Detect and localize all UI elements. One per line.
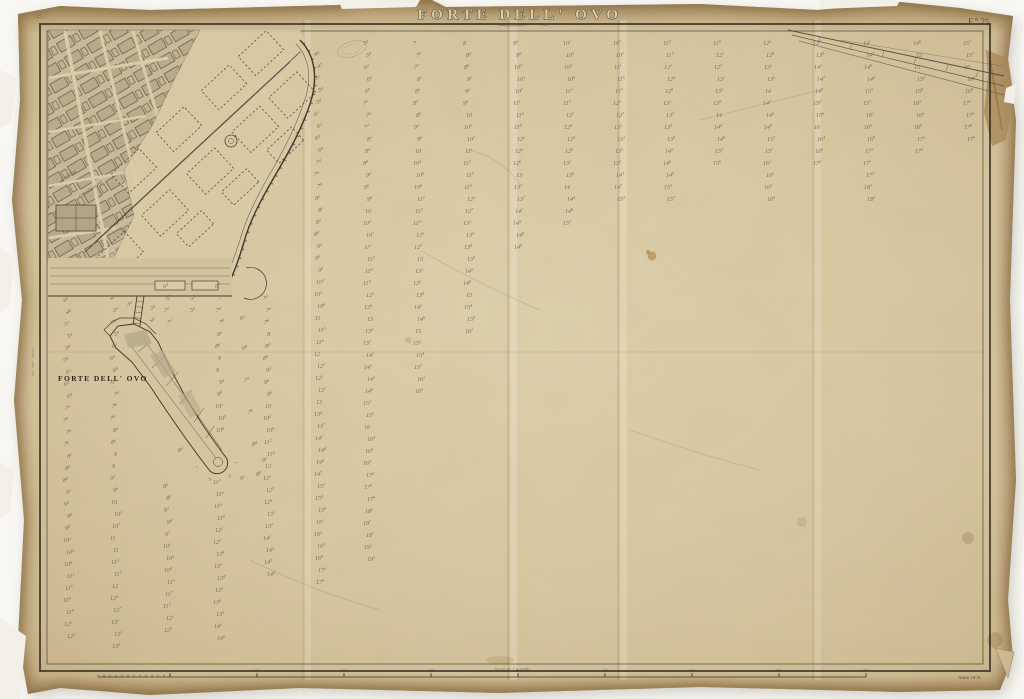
seawall-scallop-dot bbox=[248, 231, 250, 233]
seawall-scallop-dot bbox=[311, 102, 313, 104]
seawall-scallop-dot bbox=[285, 159, 287, 161]
scale-tick-label: 100 bbox=[254, 668, 260, 673]
sounding-depth: 9 bbox=[114, 452, 117, 458]
sounding-depth: 10 bbox=[265, 404, 271, 410]
sounding-depth: 15 bbox=[914, 65, 920, 71]
seawall-scallop-dot bbox=[255, 215, 257, 217]
seawall-scallop-dot bbox=[308, 111, 310, 113]
seawall-scallop-dot bbox=[313, 94, 315, 96]
scanned-map-sheet: FORTE DELL' OVO F.° 25. 25. bbox=[0, 0, 1024, 699]
scale-tick-label: 200 bbox=[341, 668, 347, 673]
seawall-scallop-dot bbox=[301, 127, 303, 129]
sounding-depth: 15 bbox=[415, 329, 421, 335]
sounding-depth: 10 bbox=[466, 113, 472, 119]
seawall-scallop-dot bbox=[305, 119, 307, 121]
sounding-depth: 11 bbox=[315, 316, 321, 322]
seawall-scallop-dot bbox=[251, 223, 253, 225]
sounding-depth: 15 bbox=[916, 53, 922, 59]
seawall-scallop-dot bbox=[297, 136, 299, 138]
sounding-depth: 15 bbox=[466, 293, 472, 299]
sounding-depth: 13 bbox=[417, 257, 423, 263]
scale-label: Scala di 1 a 1000 bbox=[495, 668, 530, 673]
corner-mark: 25. bbox=[36, 14, 44, 20]
seawall-scallop-dot bbox=[280, 167, 282, 169]
seawall-scallop-dot bbox=[245, 240, 247, 242]
sounding-depth: 9 bbox=[112, 464, 115, 470]
seawall-scallop-dot bbox=[314, 67, 316, 69]
map-canvas: FORTE DELL' OVO F.° 25. 25. bbox=[0, 0, 1024, 699]
seawall-scallop-dot bbox=[308, 50, 310, 52]
seawall-scallop-dot bbox=[315, 85, 317, 87]
sounding-depth: 10 bbox=[365, 209, 371, 215]
sounding-depth: 12 bbox=[314, 352, 320, 358]
seawall-scallop-dot bbox=[242, 249, 244, 251]
seawall-scallop-dot bbox=[293, 144, 295, 146]
seawall-scallop-dot bbox=[312, 58, 314, 60]
sounding-depth: 9 bbox=[218, 356, 221, 362]
sounding-depth: 8 bbox=[463, 41, 466, 47]
sounding-depth: 16 bbox=[364, 425, 370, 431]
sounding-depth: 9 bbox=[216, 368, 219, 374]
sounding-depth: 14 bbox=[564, 184, 570, 191]
seawall-scallop-dot bbox=[263, 199, 265, 201]
sounding-depth: 16 bbox=[814, 125, 820, 131]
sounding-depth: 10 bbox=[415, 149, 421, 155]
sounding-depth: 13 bbox=[516, 173, 522, 179]
seawall-scallop-dot bbox=[258, 207, 260, 209]
sounding-depth: 8 bbox=[267, 332, 270, 338]
date-note: Anno 1876 bbox=[958, 676, 981, 681]
sounding-depth: 10 bbox=[111, 500, 117, 506]
seawall-scallop-dot bbox=[233, 274, 235, 276]
scale-tick-label: 500 bbox=[602, 668, 608, 673]
sounding-depth: 11 bbox=[110, 536, 116, 542]
sheet-title: FORTE DELL' OVO bbox=[417, 7, 622, 23]
sounding-depth: 13 bbox=[367, 317, 373, 323]
scale-tick-label: 800 bbox=[863, 668, 869, 673]
sounding-depth: 12 bbox=[265, 464, 271, 470]
seawall-scallop-dot bbox=[271, 183, 273, 185]
scale-tick-label: 600 bbox=[689, 668, 695, 673]
seawall-scallop-dot bbox=[237, 266, 239, 268]
scale-tick-label: 300 bbox=[428, 668, 434, 673]
fort-label: FORTE DELL' OVO bbox=[58, 374, 148, 383]
sounding-depth: 11 bbox=[113, 548, 119, 554]
scale-tick-label: 700 bbox=[776, 668, 782, 673]
seawall-scallop-dot bbox=[276, 175, 278, 177]
seawall-scallop-dot bbox=[303, 43, 305, 45]
sounding-depth: 12 bbox=[112, 584, 118, 590]
sounding-depth: 14 bbox=[765, 88, 771, 95]
plate-number: F.° 25. bbox=[968, 16, 992, 27]
seawall-scallop-dot bbox=[267, 191, 269, 193]
sounding-depth: 14 bbox=[716, 112, 722, 119]
sounding-depth: 16 bbox=[964, 65, 970, 71]
seawall-scallop-dot bbox=[289, 152, 291, 154]
seawall-scallop-dot bbox=[240, 257, 242, 259]
sounding-depth: 13 bbox=[316, 400, 322, 406]
